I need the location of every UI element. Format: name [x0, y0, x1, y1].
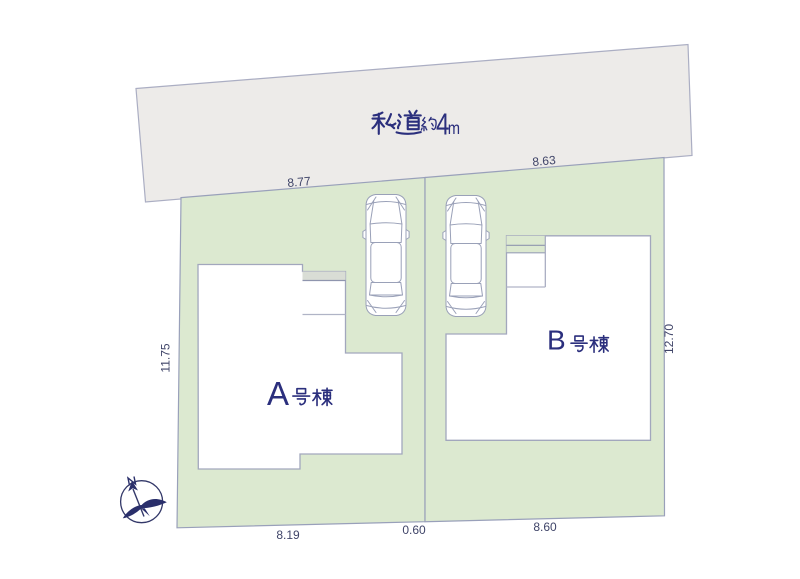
svg-text:m: m	[448, 119, 460, 139]
svg-text:8.19: 8.19	[276, 528, 300, 542]
svg-text:12.70: 12.70	[662, 324, 676, 354]
svg-text:A: A	[267, 375, 289, 412]
svg-text:0.60: 0.60	[402, 523, 426, 537]
svg-text:B: B	[547, 325, 566, 356]
svg-text:11.75: 11.75	[159, 343, 173, 372]
svg-text:8.77: 8.77	[287, 174, 312, 190]
svg-text:8.63: 8.63	[532, 153, 557, 169]
svg-text:8.60: 8.60	[533, 520, 557, 534]
